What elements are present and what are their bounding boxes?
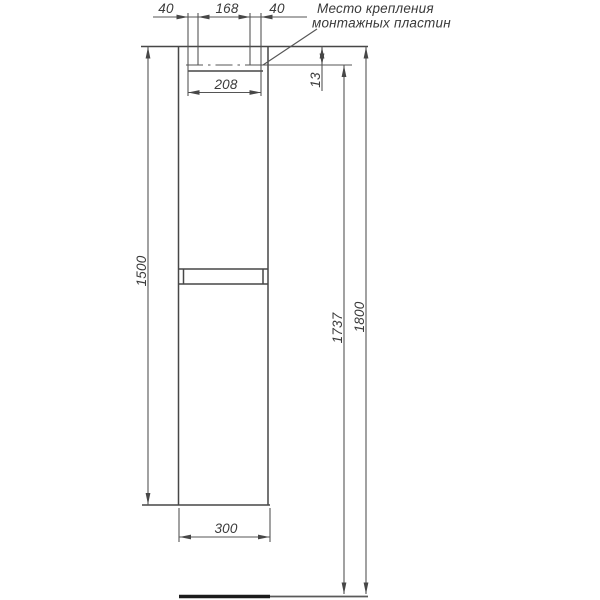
- dim-label-168: 168: [215, 1, 238, 16]
- arrow-down-icon: [146, 493, 151, 505]
- dim-1800: 1800: [352, 47, 368, 595]
- arrow-down-icon: [320, 54, 325, 66]
- arrow-up-icon: [364, 47, 369, 59]
- arrow-left-icon: [180, 535, 192, 540]
- arrow-right-icon: [177, 15, 189, 20]
- mounting-plate-region: [186, 29, 352, 71]
- arrow-down-icon: [342, 583, 347, 595]
- drawing-canvas: Место крепления монтажных пластин 40 168…: [0, 0, 600, 600]
- arrow-up-icon: [342, 66, 347, 78]
- dim-label-1800: 1800: [352, 301, 367, 332]
- technical-drawing: Место крепления монтажных пластин 40 168…: [0, 0, 600, 600]
- dim-label-1500: 1500: [134, 255, 149, 286]
- dim-1500: 1500: [134, 47, 150, 506]
- dim-208: 208: [188, 77, 261, 95]
- arrow-right-icon: [258, 535, 270, 540]
- dim-1737: 1737: [330, 65, 346, 594]
- dim-13: 13: [308, 47, 324, 92]
- dim-label-40-left: 40: [158, 1, 174, 16]
- dim-label-40-right: 40: [269, 1, 285, 16]
- arrow-left-icon: [198, 15, 210, 20]
- callout-note: Место крепления монтажных пластин: [312, 1, 451, 31]
- arrow-down-icon: [364, 583, 369, 595]
- cabinet-outline: [141, 47, 368, 506]
- dim-label-300: 300: [214, 521, 237, 536]
- callout-text-line2: монтажных пластин: [312, 16, 451, 31]
- dim-label-13: 13: [308, 72, 323, 88]
- callout-text-line1: Место крепления: [317, 1, 434, 16]
- arrow-right-icon: [239, 15, 251, 20]
- dim-label-208: 208: [213, 77, 237, 92]
- arrow-left-icon: [188, 90, 200, 95]
- arrow-right-icon: [250, 90, 262, 95]
- dim-label-1737: 1737: [330, 312, 345, 343]
- dim-300: 300: [179, 508, 270, 542]
- arrow-up-icon: [146, 47, 151, 59]
- handle-groove: [179, 269, 269, 284]
